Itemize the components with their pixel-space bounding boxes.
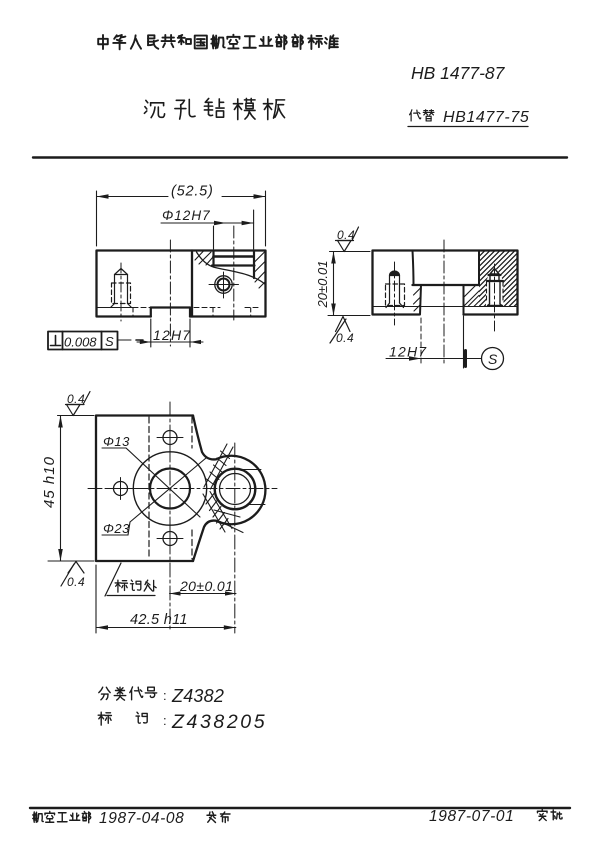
svg-text:Z4382: Z4382 (171, 686, 224, 706)
svg-text:1987-07-01: 1987-07-01 (429, 808, 514, 825)
svg-text::: : (163, 688, 167, 703)
svg-text:45 h10: 45 h10 (41, 456, 58, 508)
svg-text:S: S (105, 334, 114, 349)
svg-text:42.5 h11: 42.5 h11 (130, 612, 188, 628)
svg-text:1987-04-08: 1987-04-08 (99, 810, 184, 827)
svg-text:Φ13: Φ13 (103, 434, 130, 449)
svg-text:HB1477-75: HB1477-75 (443, 109, 529, 126)
svg-text:Z438205: Z438205 (171, 711, 267, 733)
svg-text:Φ23: Φ23 (103, 521, 130, 536)
svg-text:HB 1477-87: HB 1477-87 (411, 63, 506, 83)
svg-text:Φ12H7: Φ12H7 (162, 208, 211, 223)
svg-text:0.4: 0.4 (336, 331, 354, 345)
svg-text:12H7: 12H7 (389, 344, 427, 360)
svg-text:0.4: 0.4 (67, 575, 85, 589)
svg-text:20±0.01: 20±0.01 (315, 261, 330, 309)
svg-text:(52.5): (52.5) (171, 184, 214, 200)
svg-text:0.008: 0.008 (64, 335, 97, 350)
svg-text::: : (163, 713, 167, 728)
svg-text:12H7: 12H7 (153, 327, 191, 343)
svg-text:S: S (488, 351, 498, 367)
